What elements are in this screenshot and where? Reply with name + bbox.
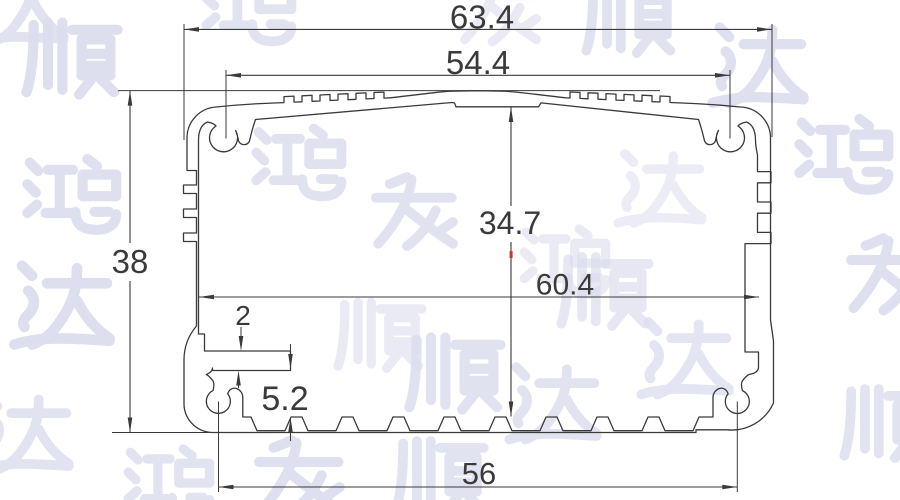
svg-text:56: 56	[462, 456, 496, 491]
svg-text:34.7: 34.7	[479, 205, 541, 241]
svg-text:54.4: 54.4	[446, 44, 510, 81]
svg-text:5.2: 5.2	[261, 380, 308, 418]
svg-text:2: 2	[235, 300, 251, 331]
svg-text:60.4: 60.4	[536, 269, 594, 302]
svg-text:63.4: 63.4	[450, 0, 514, 36]
svg-text:38: 38	[112, 243, 149, 280]
